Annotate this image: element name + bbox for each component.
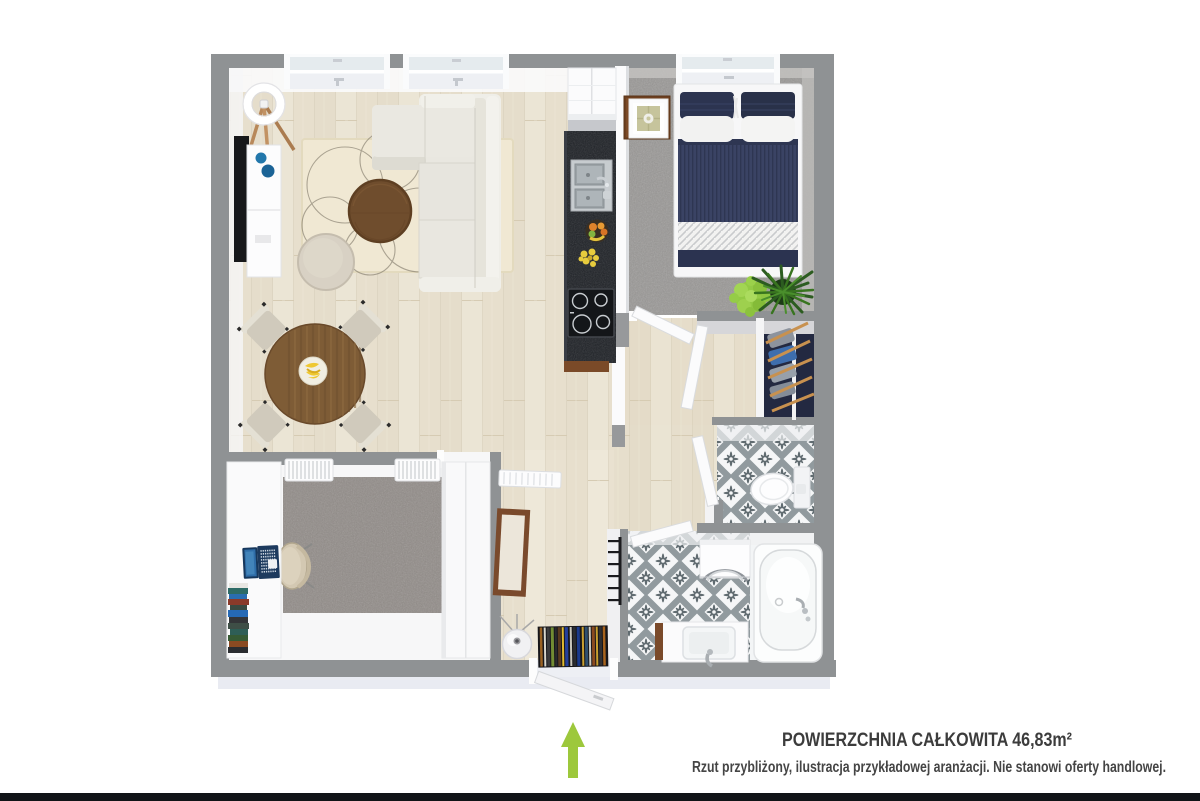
- svg-text:POWIERZCHNIA CAŁKOWITA 46,83m²: POWIERZCHNIA CAŁKOWITA 46,83m²: [782, 729, 1072, 751]
- svg-text:Rzut przybliżony, ilustracja p: Rzut przybliżony, ilustracja przykładowe…: [692, 759, 1166, 776]
